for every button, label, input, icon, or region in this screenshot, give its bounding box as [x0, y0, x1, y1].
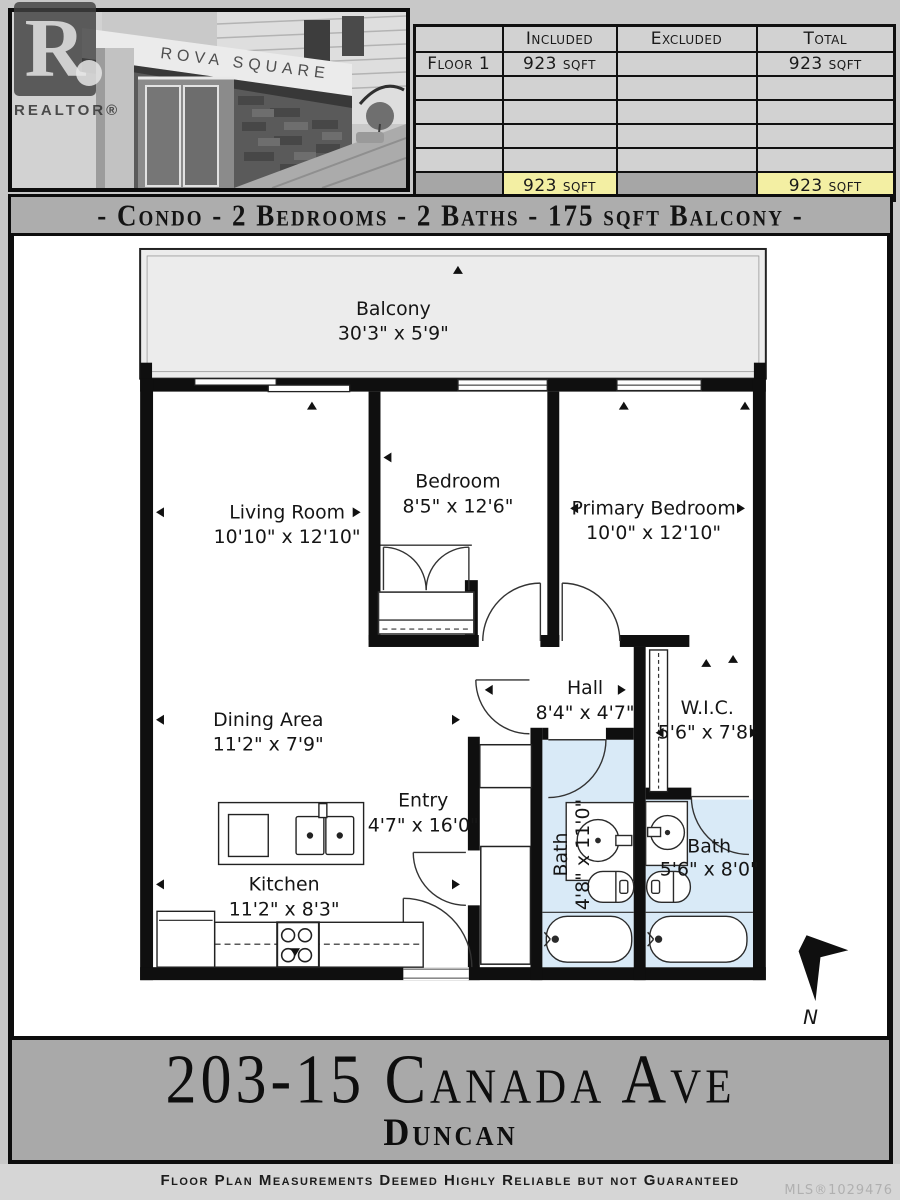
header-included: Included — [503, 26, 617, 53]
table-header-row: Included Excluded Total — [415, 26, 895, 53]
room-dims-dining: 11'2" x 7'9" — [213, 734, 324, 756]
area-summary-table: Included Excluded Total Floor 1 923 sqft… — [413, 24, 896, 202]
table-row-empty — [415, 76, 895, 100]
room-dims-bath1: 4'8" x 11'0" — [572, 799, 594, 910]
table-row-empty — [415, 124, 895, 148]
north-label: N — [803, 1006, 818, 1029]
table-row-floor1: Floor 1 923 sqft 923 sqft — [415, 52, 895, 76]
room-label-kitchen: Kitchen — [249, 873, 320, 895]
realtor-watermark: R REALTOR® — [14, 2, 120, 119]
window — [617, 380, 701, 391]
realtor-r-logo-icon: R — [14, 2, 96, 96]
cell-floor-label: Floor 1 — [415, 52, 503, 76]
realtor-watermark-label: REALTOR® — [14, 102, 120, 119]
room-dims-kitchen: 11'2" x 8'3" — [229, 898, 340, 920]
footer: Floor Plan Measurements Deemed Highly Re… — [0, 1164, 900, 1200]
floor-plan: Balcony 30'3" x 5'9" Living Room 10'10" … — [14, 236, 887, 1036]
room-label-wic: W.I.C. — [681, 697, 734, 719]
room-label-primary: Primary Bedroom — [571, 497, 735, 519]
room-label-dining: Dining Area — [213, 709, 323, 731]
room-dims-bath2: 5'6" x 8'0" — [660, 858, 759, 880]
room-label-bath1: Bath — [550, 832, 572, 876]
header-blank — [415, 26, 503, 53]
framed-content: - Condo - 2 Bedrooms - 2 Baths - 175 sqf… — [8, 194, 893, 1164]
room-dims-entry: 4'7" x 16'0" — [368, 814, 479, 836]
room-label-bedroom: Bedroom — [415, 470, 500, 492]
summary-banner: - Condo - 2 Bedrooms - 2 Baths - 175 sqf… — [11, 197, 890, 233]
room-label-entry: Entry — [398, 790, 448, 812]
room-dims-bedroom: 8'5" x 12'6" — [402, 495, 513, 517]
cell-floor1-excluded — [617, 52, 757, 76]
entry-threshold — [403, 967, 469, 980]
room-dims-hall: 8'4" x 4'7" — [536, 702, 635, 724]
footer-disclaimer: Floor Plan Measurements Deemed Highly Re… — [0, 1164, 900, 1189]
address-line2: Duncan — [383, 1111, 517, 1155]
table-row-empty — [415, 100, 895, 124]
room-label-living: Living Room — [229, 501, 345, 523]
entrance-doors — [138, 78, 234, 188]
kitchen-island — [219, 803, 364, 865]
cell-floor1-included: 923 sqft — [503, 52, 617, 76]
room-dims-wic: 5'6" x 7'8" — [658, 722, 757, 744]
mls-number: MLS®1029476 — [784, 1183, 893, 1198]
room-label-bath2: Bath — [687, 835, 731, 857]
room-dims-balcony: 30'3" x 5'9" — [338, 323, 449, 345]
room-dims-living: 10'10" x 12'10" — [214, 526, 361, 548]
header-excluded: Excluded — [617, 26, 757, 53]
bedroom-closet — [378, 545, 473, 634]
window — [458, 380, 547, 391]
cell-floor1-total: 923 sqft — [757, 52, 895, 76]
entry-closet — [480, 745, 532, 964]
summary-banner-text: - Condo - 2 Bedrooms - 2 Baths - 175 sqf… — [97, 197, 803, 233]
address-line1: 203-15 Canada Ave — [166, 1044, 736, 1117]
balcony — [140, 249, 766, 379]
north-arrow-icon: N — [799, 935, 849, 1029]
room-label-hall: Hall — [567, 677, 603, 699]
header-total: Total — [757, 26, 895, 53]
floor-plan-drawing: Balcony 30'3" x 5'9" Living Room 10'10" … — [14, 236, 887, 1036]
room-dims-primary: 10'0" x 12'10" — [586, 522, 721, 544]
table-row-empty — [415, 148, 895, 172]
room-label-balcony: Balcony — [356, 298, 431, 320]
address-banner: 203-15 Canada Ave Duncan — [12, 1040, 889, 1160]
floorplan-sheet: { "photo": { "sign_text": "ROVA SQUARE",… — [0, 0, 900, 1200]
